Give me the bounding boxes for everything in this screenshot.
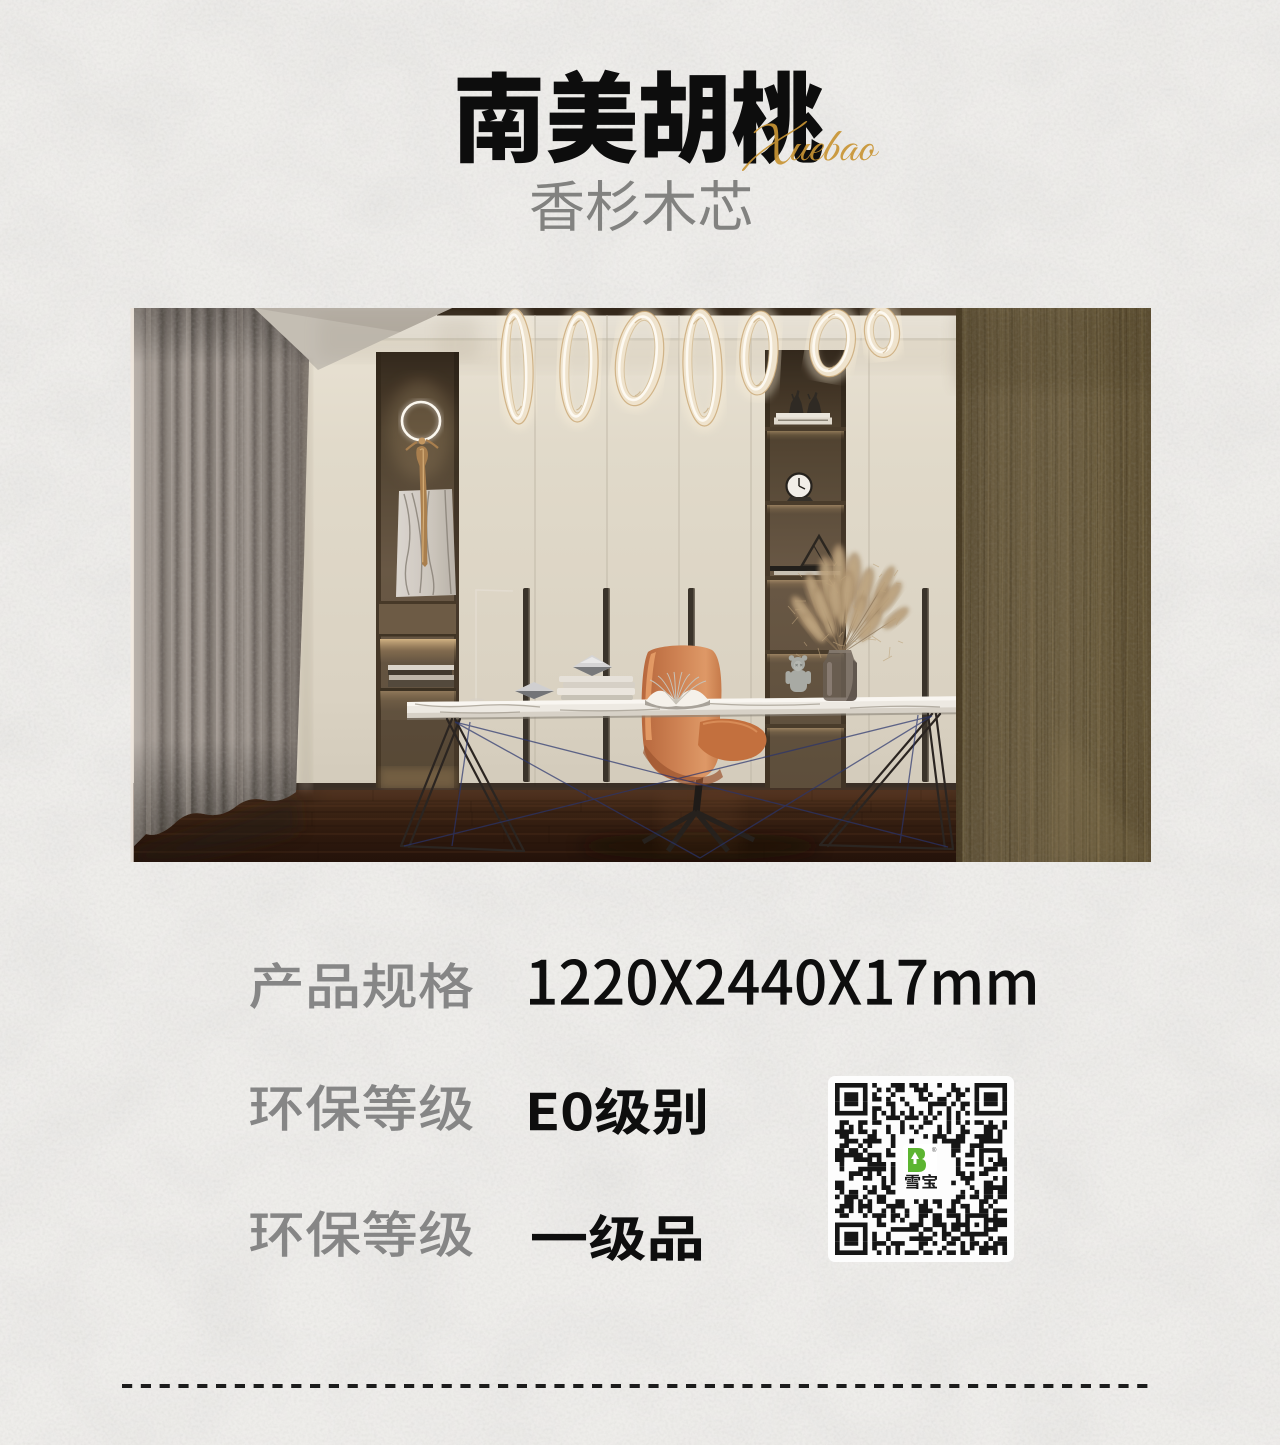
svg-text:®: ® xyxy=(932,1147,937,1154)
